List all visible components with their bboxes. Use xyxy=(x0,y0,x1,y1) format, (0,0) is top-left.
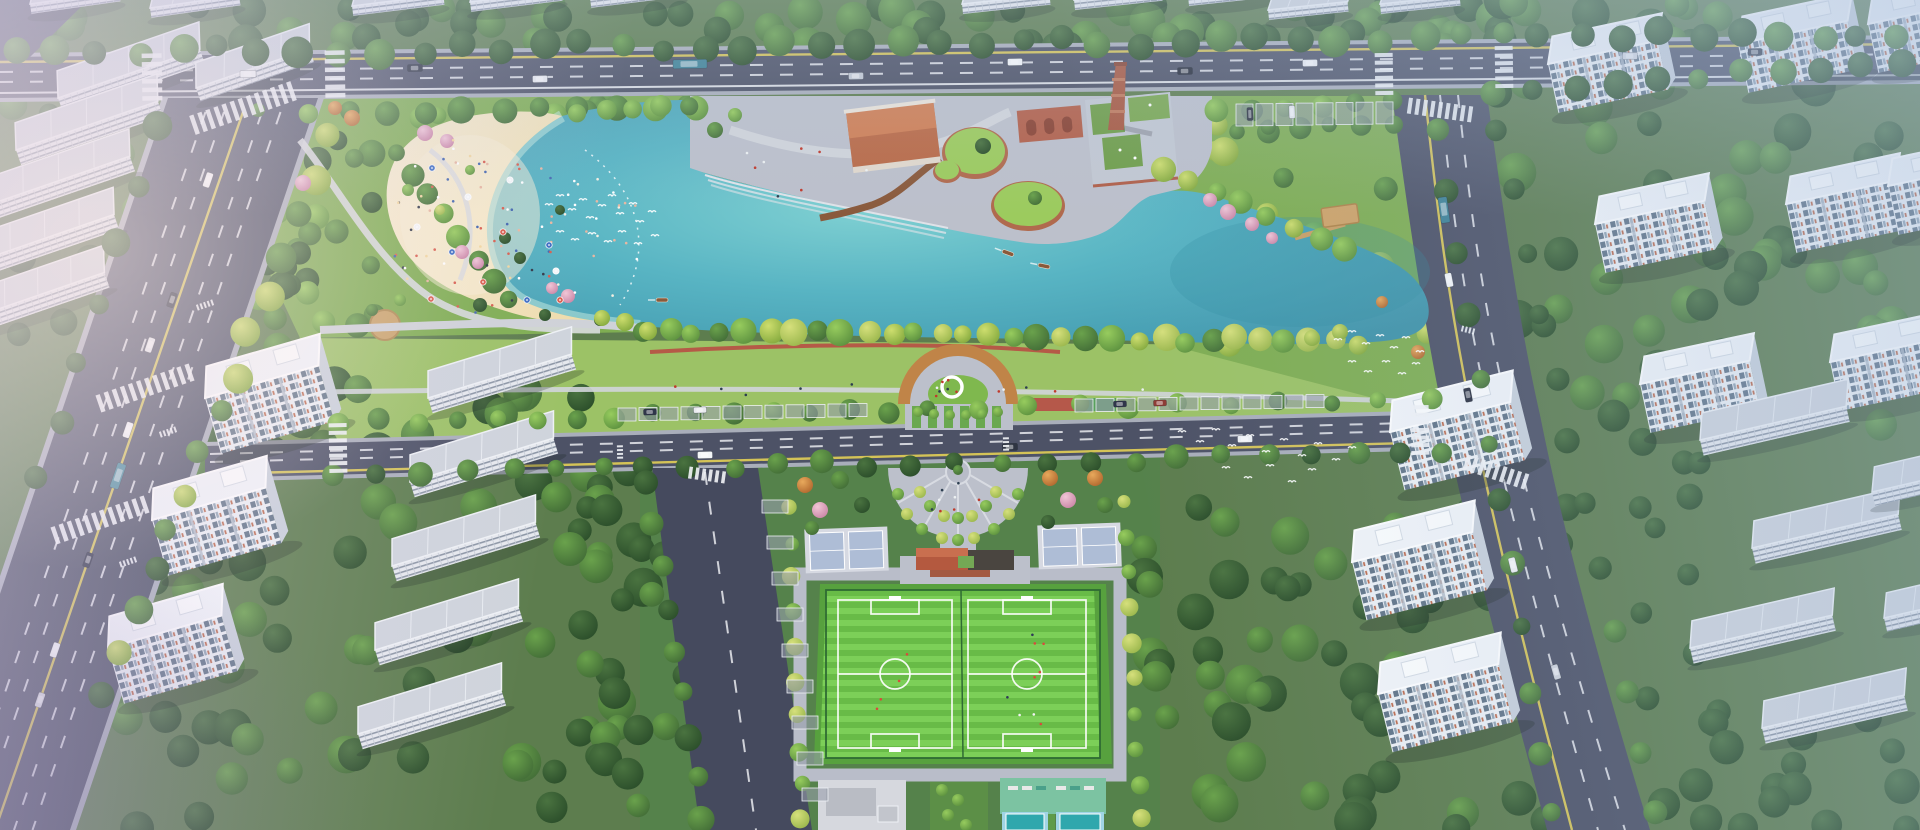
person-dot xyxy=(938,499,941,502)
tree-m xyxy=(401,164,424,187)
tree-d xyxy=(66,353,86,373)
tree-m xyxy=(1141,661,1172,692)
tree-d xyxy=(857,457,877,477)
tree-m xyxy=(154,519,176,541)
tree-w xyxy=(174,485,197,508)
tree-l xyxy=(1205,98,1229,122)
tree-d xyxy=(1629,496,1652,519)
tree-d xyxy=(1544,237,1578,271)
tree-m xyxy=(1028,191,1042,205)
tree-y xyxy=(990,486,1002,498)
tree-m xyxy=(1884,25,1908,49)
person-dot xyxy=(541,225,544,228)
tree-m xyxy=(324,219,348,243)
tree-d xyxy=(102,228,131,257)
person-dot xyxy=(818,151,821,154)
person-dot xyxy=(484,171,487,174)
tree-d xyxy=(361,192,382,213)
tree-m xyxy=(994,455,1011,472)
person-dot xyxy=(1033,676,1036,679)
tree-d xyxy=(1686,289,1718,321)
tree-m xyxy=(1472,370,1490,388)
person-dot xyxy=(515,249,518,252)
parking-stall xyxy=(1306,395,1324,408)
tree-d xyxy=(128,176,150,198)
tree-d xyxy=(900,455,921,476)
tree-m xyxy=(1300,781,1329,810)
tree-d xyxy=(167,735,199,767)
person-dot xyxy=(414,165,417,168)
tree-d xyxy=(634,470,658,494)
tree-m xyxy=(953,465,963,475)
tree-d xyxy=(24,466,47,489)
person-dot xyxy=(577,183,580,186)
parking-stall xyxy=(1316,103,1333,125)
tree-p xyxy=(1060,492,1076,508)
parking-stall xyxy=(1180,397,1198,410)
vehicle xyxy=(1007,58,1022,65)
tree-d xyxy=(1845,26,1866,47)
tree-d xyxy=(1288,26,1314,52)
person-dot xyxy=(404,267,407,270)
parking-stall xyxy=(1285,395,1303,408)
tree-m xyxy=(186,440,209,463)
tree-m xyxy=(408,462,433,487)
tree-d xyxy=(1677,564,1699,586)
vehicle xyxy=(1247,107,1253,120)
tree-d xyxy=(808,32,835,59)
tree-d xyxy=(843,29,875,61)
tree-d xyxy=(1240,23,1267,50)
tree-d xyxy=(1758,786,1790,818)
person-dot xyxy=(509,277,512,280)
tree-y xyxy=(1122,633,1142,653)
person-dot xyxy=(612,191,615,194)
tree-m xyxy=(1450,23,1471,44)
tree-l xyxy=(826,319,853,346)
tree-m xyxy=(530,97,549,116)
tree-d xyxy=(1485,120,1507,142)
person-dot xyxy=(674,385,677,388)
person-dot xyxy=(486,163,489,166)
tree-m xyxy=(1211,445,1230,464)
person-dot xyxy=(954,496,957,499)
tree-p xyxy=(1203,193,1217,207)
tree-d xyxy=(727,36,756,65)
tree-d xyxy=(1321,640,1347,666)
red-brick-pavilion xyxy=(900,548,1030,586)
tree-d xyxy=(555,205,565,215)
tree-m xyxy=(362,256,380,274)
tree-d xyxy=(1518,244,1537,263)
tree-m xyxy=(1200,784,1238,822)
vehicle xyxy=(1153,400,1166,406)
tree-m xyxy=(1273,168,1293,188)
parking-stall xyxy=(618,408,636,421)
parking-stall xyxy=(849,404,867,417)
tree-l xyxy=(394,294,406,306)
tree-l xyxy=(936,784,948,796)
tree-l xyxy=(1175,333,1195,353)
tree-d xyxy=(1598,400,1630,432)
tree-d xyxy=(206,35,228,57)
tree-y xyxy=(936,532,948,544)
tree-y xyxy=(1120,598,1138,616)
tree-m xyxy=(388,144,405,161)
person-dot xyxy=(931,508,934,511)
parking-stall xyxy=(797,752,823,765)
person-dot xyxy=(574,204,577,207)
person-dot xyxy=(564,213,567,216)
tree-m xyxy=(1493,22,1514,43)
tree-d xyxy=(1390,443,1411,464)
tree-l xyxy=(529,412,547,430)
tree-d xyxy=(611,588,634,611)
person-dot xyxy=(502,207,505,210)
tree-w xyxy=(954,325,972,343)
tree-m xyxy=(503,750,534,781)
tree-m xyxy=(1097,497,1113,513)
person-dot xyxy=(518,229,521,232)
tree-l xyxy=(299,104,318,123)
tree-l xyxy=(410,414,429,433)
tree-d xyxy=(514,252,526,264)
tree-d xyxy=(1502,781,1537,816)
person-dot xyxy=(474,311,477,314)
tree-d xyxy=(530,29,561,60)
tree-d xyxy=(539,309,551,321)
tree-y xyxy=(1248,327,1272,351)
person-dot xyxy=(452,200,455,203)
person-dot xyxy=(410,229,413,232)
tree-l xyxy=(1128,742,1144,758)
tree-d xyxy=(1677,484,1703,510)
tree-p xyxy=(1220,204,1236,220)
person-dot xyxy=(550,215,553,218)
tree-y xyxy=(1221,324,1247,350)
tree-d xyxy=(260,576,290,606)
person-dot xyxy=(595,217,598,220)
tree-w xyxy=(1131,332,1149,350)
tree-d xyxy=(612,758,644,790)
tree-d xyxy=(51,411,75,435)
tree-l xyxy=(952,534,964,546)
tree-m xyxy=(525,627,556,658)
vehicle xyxy=(1289,105,1295,118)
tree-l xyxy=(1012,488,1024,500)
tree-d xyxy=(1529,305,1549,325)
tree-l xyxy=(961,410,971,420)
tree-m xyxy=(541,482,571,512)
tree-l xyxy=(1098,325,1125,352)
parking-stall xyxy=(762,500,788,513)
parking-stall xyxy=(782,644,808,657)
tree-m xyxy=(1770,59,1797,86)
person-dot xyxy=(585,230,588,233)
tree-d xyxy=(242,38,270,66)
person-dot xyxy=(417,206,420,209)
tree-m xyxy=(1528,742,1552,766)
tree-m xyxy=(1155,705,1179,729)
tree-m xyxy=(1164,444,1189,469)
tree-d xyxy=(1172,29,1200,57)
tree-m xyxy=(1023,324,1050,351)
tree-m xyxy=(366,304,378,316)
person-dot xyxy=(953,508,956,511)
person-dot xyxy=(754,166,757,169)
vehicle xyxy=(693,407,706,413)
tree-y xyxy=(780,319,807,346)
person-dot xyxy=(1040,723,1043,726)
tree-p xyxy=(455,245,469,259)
tree-m xyxy=(810,449,834,473)
person-dot xyxy=(454,281,457,284)
tree-m xyxy=(1570,375,1605,410)
tree-m xyxy=(124,596,153,625)
tree-m xyxy=(1136,571,1163,598)
lawn-mound xyxy=(935,161,959,180)
tree-y xyxy=(1003,508,1015,520)
tree-m xyxy=(595,458,613,476)
tree-m xyxy=(568,410,587,429)
person-dot xyxy=(518,277,521,280)
parking-stall xyxy=(765,405,783,418)
tree-m xyxy=(1643,800,1667,824)
tree-d xyxy=(658,600,678,620)
tree-m xyxy=(548,460,565,477)
tree-m xyxy=(266,243,297,274)
tree-l xyxy=(952,512,964,524)
tree-d xyxy=(1446,242,1468,264)
person-dot xyxy=(511,208,514,211)
tree-d xyxy=(1874,121,1903,150)
tree-d xyxy=(489,40,514,65)
tree-m xyxy=(447,96,474,123)
parking-stall xyxy=(792,716,818,729)
person-dot xyxy=(574,291,577,294)
tree-l xyxy=(1005,328,1024,347)
aerial-render-canvas xyxy=(0,0,1920,830)
lake-pier-platform xyxy=(1321,204,1359,228)
tree-m xyxy=(878,402,899,423)
tree-m xyxy=(40,35,70,65)
person-dot xyxy=(1054,390,1057,393)
person-dot xyxy=(548,275,551,278)
tree-d xyxy=(927,30,952,55)
tree-l xyxy=(1332,237,1357,262)
person-dot xyxy=(431,186,434,189)
tree-m xyxy=(1764,22,1794,52)
person-dot xyxy=(549,177,552,180)
tree-d xyxy=(599,677,631,709)
person-dot xyxy=(394,255,397,258)
tree-w xyxy=(1349,336,1368,355)
person-dot xyxy=(596,178,599,181)
tree-m xyxy=(505,458,525,478)
person-dot xyxy=(480,186,483,189)
person-dot xyxy=(947,379,950,382)
person-dot xyxy=(880,698,883,701)
tree-m xyxy=(1585,122,1617,154)
tree-y xyxy=(791,809,810,828)
person-dot xyxy=(746,152,749,155)
tree-p xyxy=(472,257,484,269)
parking-stall xyxy=(744,406,762,419)
parking-stall xyxy=(772,572,798,585)
tree-m xyxy=(1127,453,1146,472)
vehicle xyxy=(1113,401,1126,407)
person-dot xyxy=(426,280,429,283)
person-dot xyxy=(549,251,552,254)
parking-stall xyxy=(807,404,825,417)
tree-d xyxy=(1637,111,1662,136)
person-dot xyxy=(493,240,496,243)
parking-stall xyxy=(1256,104,1273,126)
vehicle xyxy=(1622,52,1637,59)
person-dot xyxy=(946,388,949,391)
tree-m xyxy=(1271,517,1309,555)
person-dot xyxy=(518,168,521,171)
tree-m xyxy=(1348,442,1370,464)
tree-w xyxy=(616,313,634,331)
person-dot xyxy=(406,277,409,280)
tree-m xyxy=(888,25,919,56)
lawn-mound xyxy=(994,182,1062,226)
person-dot xyxy=(516,163,519,166)
person-dot xyxy=(1039,671,1042,674)
tree-l xyxy=(402,184,414,196)
person-dot xyxy=(433,248,436,251)
tree-m xyxy=(688,767,708,787)
tree-l xyxy=(660,318,683,341)
tree-m xyxy=(1729,59,1752,82)
vehicle xyxy=(240,70,256,77)
tree-d xyxy=(1186,494,1213,521)
tree-m xyxy=(1432,443,1452,463)
tree-m xyxy=(1247,627,1273,653)
tree-o xyxy=(1411,345,1425,359)
tree-o xyxy=(1376,296,1388,308)
person-dot xyxy=(476,226,479,229)
vehicle xyxy=(1748,48,1762,55)
person-dot xyxy=(479,245,482,248)
tree-p xyxy=(440,134,454,148)
person-dot xyxy=(452,147,455,150)
tree-w xyxy=(977,323,1000,346)
vehicle xyxy=(407,64,422,71)
person-dot xyxy=(483,161,486,164)
tree-m xyxy=(1427,119,1449,141)
tree-d xyxy=(1728,18,1757,47)
tree-m xyxy=(1729,140,1764,175)
tree-m xyxy=(807,321,827,341)
tree-m xyxy=(1760,142,1792,174)
person-dot xyxy=(939,510,942,513)
gym-building xyxy=(818,780,906,830)
person-dot xyxy=(452,139,455,142)
tree-d xyxy=(1212,702,1251,741)
tree-m xyxy=(1259,444,1280,465)
tree-m xyxy=(1368,30,1393,55)
tree-m xyxy=(768,453,789,474)
parking-stall xyxy=(828,404,846,417)
tree-d xyxy=(1546,368,1569,391)
tree-d xyxy=(366,465,385,484)
tree-m xyxy=(1084,32,1111,59)
tree-m xyxy=(1281,624,1318,661)
parking-stall xyxy=(1296,103,1313,125)
tree-m xyxy=(763,25,794,56)
tree-d xyxy=(1177,594,1214,631)
tree-l xyxy=(446,225,470,249)
tree-l xyxy=(1122,565,1137,580)
person-dot xyxy=(447,178,450,181)
tree-d xyxy=(1554,428,1579,453)
tree-m xyxy=(1519,682,1541,704)
person-dot xyxy=(936,387,939,390)
parking-stall xyxy=(723,406,741,419)
tree-p xyxy=(1245,217,1259,231)
tree-m xyxy=(375,101,400,126)
tree-d xyxy=(1525,23,1549,47)
person-dot xyxy=(415,255,418,258)
tree-y xyxy=(968,532,980,544)
person-dot xyxy=(567,193,570,196)
tree-m xyxy=(640,512,664,536)
tree-d xyxy=(566,719,594,747)
tree-w xyxy=(1304,330,1320,346)
tree-o xyxy=(1087,470,1103,486)
tree-y xyxy=(859,321,881,343)
tree-m xyxy=(1226,742,1266,782)
tree-m xyxy=(1374,177,1398,201)
tree-d xyxy=(1503,178,1524,199)
tree-l xyxy=(929,409,939,419)
tree-m xyxy=(1630,742,1652,764)
tree-l xyxy=(650,95,672,117)
tree-d xyxy=(1488,488,1511,511)
tree-d xyxy=(1848,52,1873,77)
person-dot xyxy=(425,255,428,258)
tree-p xyxy=(417,125,433,141)
person-dot xyxy=(800,147,803,150)
parking-stall xyxy=(787,680,813,693)
tree-l xyxy=(597,100,617,120)
tree-d xyxy=(1589,557,1612,580)
red-roof-heritage-hall xyxy=(844,99,943,174)
tree-m xyxy=(674,682,693,701)
person-dot xyxy=(455,161,458,164)
person-dot xyxy=(457,305,460,308)
tree-m xyxy=(1604,620,1627,643)
tree-m xyxy=(680,97,698,115)
person-dot xyxy=(478,163,481,166)
person-dot xyxy=(611,294,614,297)
tree-l xyxy=(942,809,954,821)
person-dot xyxy=(745,394,748,397)
tree-l xyxy=(568,104,586,122)
tree-d xyxy=(675,724,702,751)
tree-d xyxy=(1050,25,1074,49)
tree-w xyxy=(1178,171,1198,191)
parking-stall xyxy=(1096,399,1114,412)
tree-m xyxy=(1633,315,1665,347)
person-dot xyxy=(865,169,868,172)
person-dot xyxy=(531,269,534,272)
person-dot xyxy=(876,708,879,711)
tree-m xyxy=(231,723,263,755)
tree-p xyxy=(812,502,828,518)
